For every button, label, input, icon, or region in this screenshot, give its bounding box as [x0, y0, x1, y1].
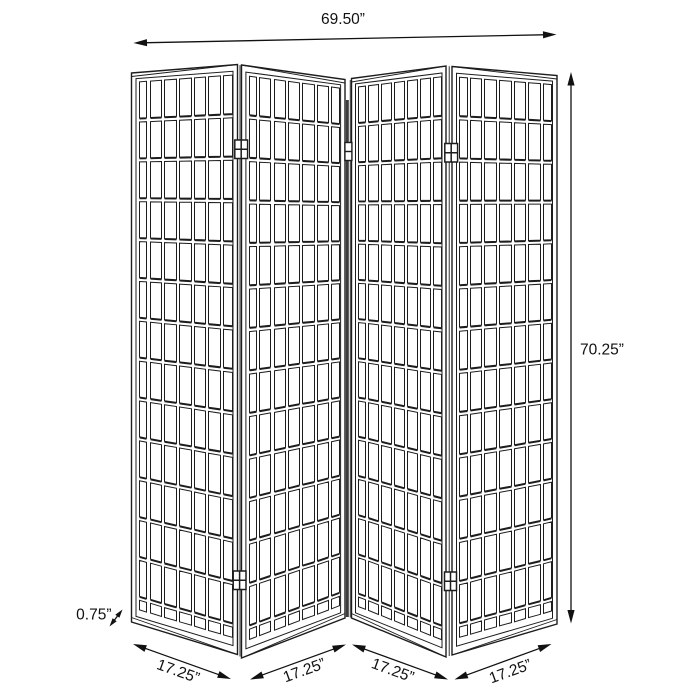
svg-text:69.50”: 69.50”	[321, 11, 365, 28]
svg-text:0.75”: 0.75”	[76, 607, 111, 624]
svg-text:70.25”: 70.25”	[580, 342, 624, 359]
